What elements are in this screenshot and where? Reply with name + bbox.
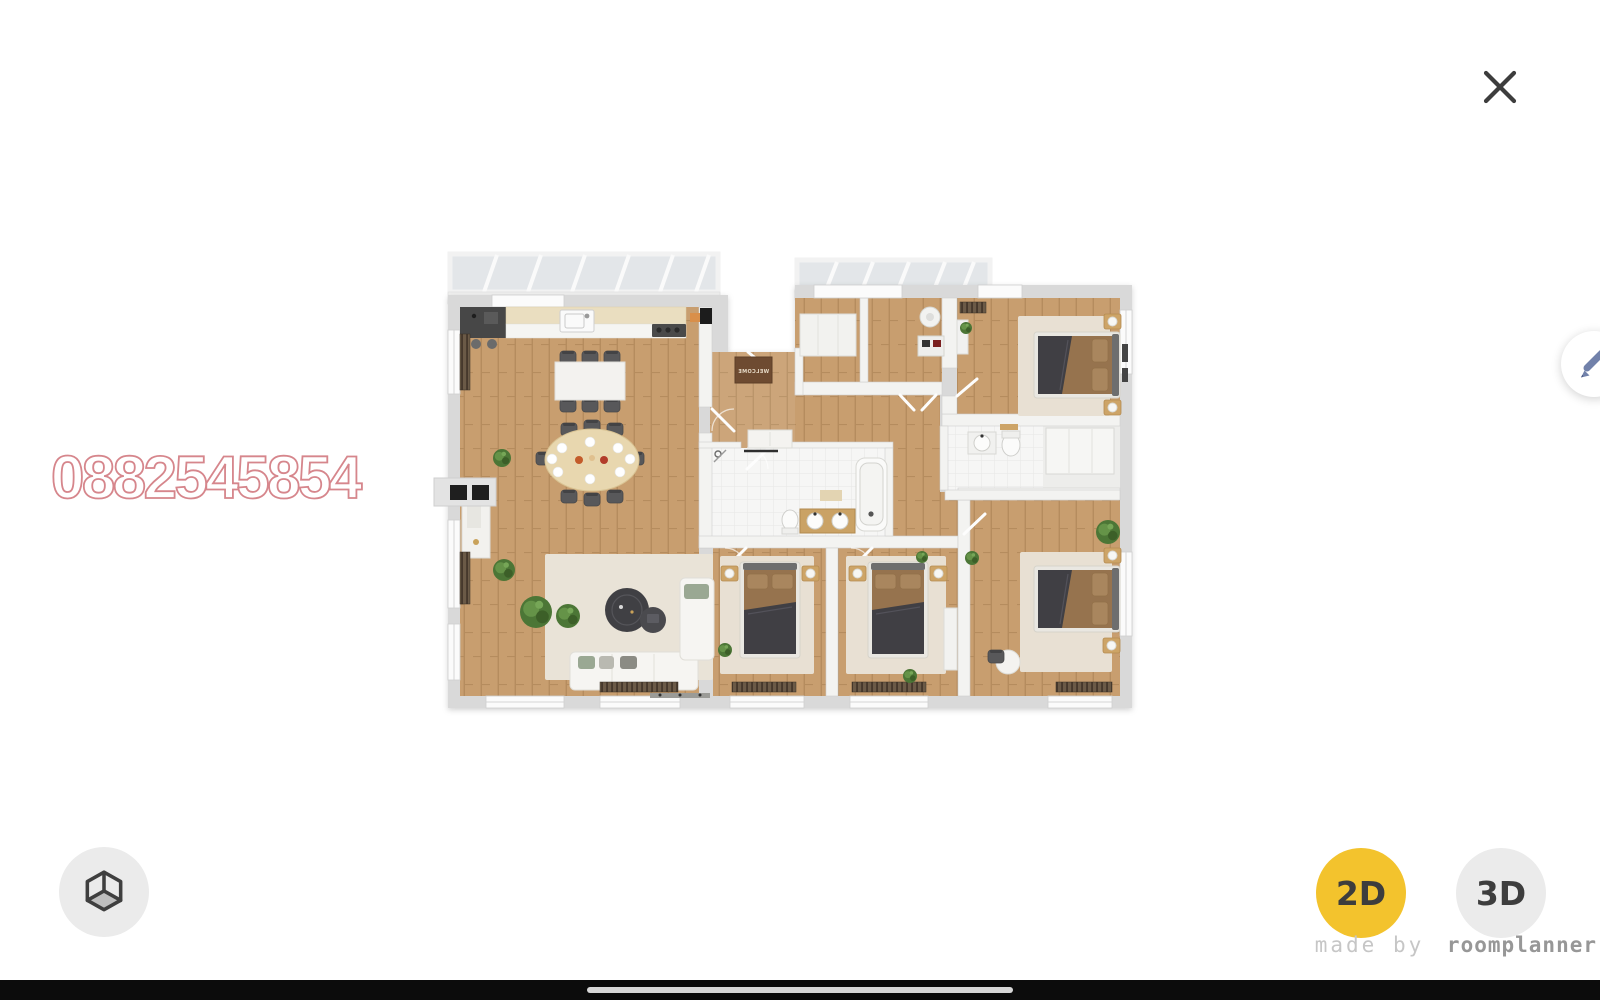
welcome-mat-text: WELCOME	[738, 369, 769, 375]
view-toggle-3d[interactable]: 3D	[1456, 848, 1546, 938]
credit-brand: roomplanner	[1447, 933, 1597, 957]
cube-view-button[interactable]	[59, 847, 149, 937]
closet-niche	[1046, 428, 1114, 474]
master-bed	[1034, 332, 1120, 398]
floorplan-svg: WELCOME	[432, 252, 1132, 710]
bedroom2-bed	[740, 562, 800, 658]
home-indicator[interactable]	[587, 987, 1013, 993]
close-x-icon	[1478, 65, 1522, 109]
credit-line: made by roomplanner	[1315, 933, 1597, 957]
storage-room	[800, 314, 856, 356]
view-toggle-2d[interactable]: 2D	[1316, 848, 1406, 938]
bedroom3-bed	[868, 562, 928, 658]
watermark-phone-number: 0882545854	[51, 443, 360, 512]
cube-3d-icon	[79, 867, 129, 917]
home-indicator-area	[0, 980, 1600, 1000]
pencil-icon	[1574, 344, 1600, 384]
bedroom-2	[718, 556, 819, 674]
edit-button[interactable]	[1561, 331, 1600, 397]
bedroom-3	[846, 551, 957, 683]
console-desk	[462, 498, 490, 558]
credit-prefix: made by	[1315, 933, 1425, 957]
close-button[interactable]	[1470, 57, 1530, 117]
bay-window	[434, 478, 496, 506]
dining-table-rect	[555, 351, 625, 412]
floorplan-2d-view[interactable]: WELCOME	[432, 252, 1132, 710]
bedroom4-bed	[1034, 566, 1120, 632]
